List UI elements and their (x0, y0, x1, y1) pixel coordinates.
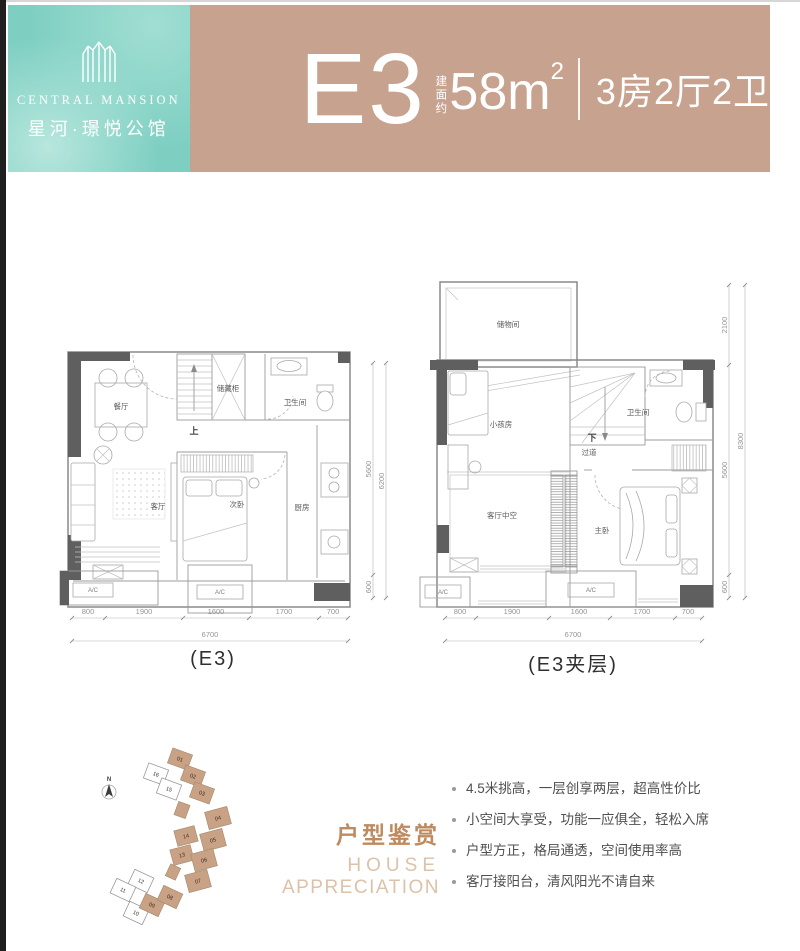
room-label-kitchen: 厨房 (295, 502, 310, 512)
room-label-storage-cabinet: 储藏柜 (217, 383, 240, 393)
dining-furniture: 餐厅 (95, 369, 147, 441)
appreciation-title-cn: 户型鉴赏 (160, 816, 440, 850)
dim-label-v: 5600 (364, 461, 373, 478)
plan-caption-e3-mezzanine: (E3夹层) (473, 648, 673, 677)
area-prefix: 建面约 (434, 75, 446, 116)
feature-bullet: 4.5米挑高，一层创享两层，超高性价比 (452, 780, 732, 798)
dim-label-v: 600 (720, 581, 729, 594)
ac-platforms: A/C A/C (60, 565, 252, 613)
floor-plan-e3-lower: 储藏柜 上 卫生间 厨房 次卧 (55, 345, 395, 675)
room-label-master: 主卧 (595, 525, 610, 535)
dim-total-label: 6700 (202, 630, 219, 639)
unit-title-block: E3 建面约 58m2 3房2厅2卫 (190, 5, 770, 172)
feature-text: 小空间大享受，功能一应俱全，轻松入席 (466, 811, 709, 829)
feature-bullet: 户型方正，格局通透，空间使用率高 (452, 842, 732, 860)
ac-platforms: A/C A/C (420, 571, 678, 607)
feature-bullet-list: 4.5米挑高，一层创享两层，超高性价比 小空间大享受，功能一应俱全，轻松入席 户… (452, 780, 732, 904)
feature-text: 客厅接阳台，清风阳光不请自来 (466, 873, 655, 891)
room-label-kids: 小孩房 (490, 419, 513, 429)
north-arrow-icon: N (102, 777, 116, 799)
appreciation-title-en-1: HOUSE (160, 855, 440, 877)
feature-text: 4.5米挑高，一层创享两层，超高性价比 (466, 780, 701, 798)
stairs: 下 (570, 367, 645, 445)
stairs: 储藏柜 上 (177, 354, 245, 436)
master-bedroom-furniture: 主卧 (595, 445, 707, 574)
dim-label: 1700 (634, 607, 651, 616)
void-railing (551, 471, 577, 573)
screen-edge-top (6, 0, 800, 2)
title-divider (578, 58, 580, 120)
ac-label-2: A/C (586, 588, 597, 594)
feature-bullet: 客厅接阳台，清风阳光不请自来 (452, 873, 732, 891)
dim-label: 800 (82, 607, 95, 616)
ac-label-2: A/C (215, 590, 226, 596)
bathroom-fixtures: 卫生间 (627, 370, 706, 422)
kitchen-fixtures: 厨房 (295, 425, 349, 578)
area-number: 58m (449, 63, 550, 121)
room-label-dining: 餐厅 (114, 402, 129, 411)
stairs-up-label: 上 (189, 425, 198, 436)
living-void: 客厅中空 (450, 475, 566, 572)
area-sup: 2 (551, 58, 564, 85)
brand-logo-block: CENTRAL MANSION 星河·璟悦公馆 (8, 5, 190, 172)
living-furniture: 客厅 (71, 446, 177, 579)
bedroom2-furniture: 次卧 (181, 455, 285, 561)
dim-total-label-v: 6200 (377, 473, 386, 490)
plan-caption-e3: (E3) (123, 648, 303, 671)
appreciation-title-en-2: APPRECIATION (160, 877, 440, 899)
room-label-storeroom: 储物间 (497, 319, 520, 329)
unit-code: E3 (300, 44, 426, 134)
header: CENTRAL MANSION 星河·璟悦公馆 E3 建面约 58m2 3房2厅… (8, 5, 770, 172)
dim-label: 1900 (136, 607, 153, 616)
bullet-dot-icon (452, 880, 456, 884)
layout-description: 3房2厅2卫 (596, 63, 770, 115)
dim-label: 1900 (504, 607, 521, 616)
brand-name-en: CENTRAL MANSION (17, 93, 181, 108)
room-label-living: 客厅 (151, 501, 166, 511)
dim-label: 800 (454, 607, 467, 616)
room-label-bath-lower: 卫生间 (284, 397, 307, 407)
room-label-bath-mezz: 卫生间 (627, 407, 650, 417)
floor-plan-e3-mezzanine: 小孩房 下 卫生间 过道 储物间 客厅中空 (420, 275, 760, 675)
room-label-living-void: 客厅中空 (487, 510, 517, 520)
stairs-down-label: 下 (587, 433, 596, 443)
dim-label: 1600 (571, 607, 588, 616)
bullet-dot-icon (452, 818, 456, 822)
room-label-bedroom2: 次卧 (230, 499, 245, 509)
ac-label-1: A/C (438, 590, 449, 596)
dim-total-label-v: 8300 (736, 433, 745, 450)
bullet-dot-icon (452, 849, 456, 853)
dim-label: 1700 (276, 607, 293, 616)
dim-label-v: 2100 (720, 317, 729, 334)
appreciation-title: 户型鉴赏 HOUSE APPRECIATION (160, 816, 440, 899)
bullet-dot-icon (452, 787, 456, 791)
bathroom-fixtures: 卫生间 (268, 358, 333, 419)
area-value: 58m2 (449, 60, 564, 118)
building-logo-icon (70, 36, 128, 84)
ac-label-1: A/C (88, 588, 99, 594)
feature-bullet: 小空间大享受，功能一应俱全，轻松入席 (452, 811, 732, 829)
dim-total-label: 6700 (565, 630, 582, 639)
feature-text: 户型方正，格局通透，空间使用率高 (466, 842, 682, 860)
dim-label-v: 5600 (720, 462, 729, 479)
dim-label: 700 (327, 607, 340, 616)
dim-label-v: 600 (364, 581, 373, 594)
screen-edge-left (0, 0, 6, 951)
room-label-corridor: 过道 (582, 447, 597, 457)
kids-room-furniture: 小孩房 (448, 371, 512, 489)
dim-label: 700 (682, 607, 695, 616)
north-label: N (107, 777, 111, 783)
dim-label: 1600 (208, 607, 225, 616)
brand-name-cn: 星河·璟悦公馆 (28, 115, 170, 141)
